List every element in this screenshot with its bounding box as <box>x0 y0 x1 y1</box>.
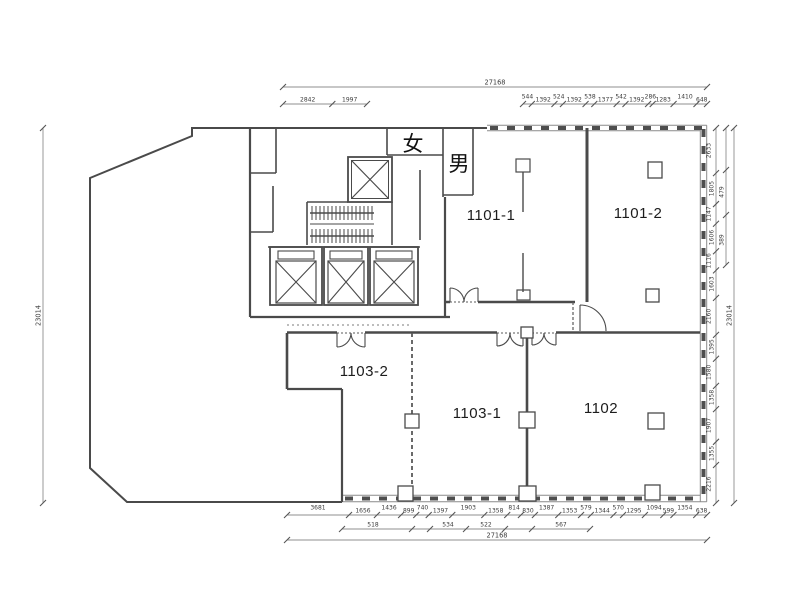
dim-label: 1395 <box>709 339 716 354</box>
dim-label: 814 <box>508 505 520 512</box>
elevator-shaft-2 <box>324 247 368 305</box>
dim-label: 1354 <box>677 505 692 512</box>
dim-label: 599 <box>663 508 675 515</box>
dim-label: 2633 <box>706 143 713 158</box>
restroom-label-men: 男 <box>449 152 470 176</box>
dim-label: 899 <box>403 508 415 515</box>
elevator-shaft-1 <box>270 247 322 305</box>
dim-label: 579 <box>580 505 592 512</box>
interior-walls <box>287 128 700 502</box>
room-label-1103-1: 1103-1 <box>453 405 502 422</box>
dim-label: 1580 <box>706 364 713 379</box>
dim-label: 1907 <box>706 418 713 433</box>
dim-label: 542 <box>615 94 627 101</box>
room-label-1101-2: 1101-2 <box>614 205 663 222</box>
column-1101-2-north <box>648 162 662 178</box>
dim-label: 2842 <box>300 97 315 104</box>
dim-label: 479 <box>719 186 726 198</box>
dim-label: 1805 <box>709 181 716 196</box>
double-door-1102 <box>532 333 556 345</box>
dim-label: 1436 <box>381 505 396 512</box>
floor-plan-page: 1101-1 1101-2 1102 1103-1 1103-2 女 男 271… <box>0 0 800 600</box>
restroom-label-women: 女 <box>403 132 424 156</box>
dim-label: 1387 <box>539 505 554 512</box>
dim-label: 1997 <box>342 97 357 104</box>
dim-label: 389 <box>719 234 726 246</box>
dim-label: 567 <box>555 522 567 529</box>
dim-label: 1295 <box>626 508 641 515</box>
elevator-shaft-upper <box>348 157 392 202</box>
floor-plan-drawing: 1101-1 1101-2 1102 1103-1 1103-2 女 男 271… <box>0 0 800 600</box>
dim-label: 524 <box>553 94 565 101</box>
corridor-door <box>580 305 606 331</box>
dim-label: 1147 <box>706 206 713 221</box>
dim-label: 544 <box>522 94 534 101</box>
dim-label: 1358 <box>709 390 716 405</box>
dim-label: 1116 <box>706 253 713 268</box>
column-1101-2-south <box>646 289 659 302</box>
dim-label: 1094 <box>646 505 661 512</box>
dim-label: 27168 <box>487 532 508 540</box>
wall-1103-2-notch <box>287 389 342 502</box>
dim-label: 518 <box>367 522 379 529</box>
dim-label: 1656 <box>355 508 370 515</box>
dim-label: 830 <box>522 508 534 515</box>
column-1102 <box>648 413 664 429</box>
building-outline <box>90 128 487 502</box>
dimension-annotations: 2716828421997544139252413925381377542139… <box>35 79 738 544</box>
dim-label: 1377 <box>598 97 613 104</box>
column-south-1 <box>398 486 413 501</box>
dim-label: 1392 <box>536 97 551 104</box>
dim-label: 1355 <box>709 446 716 461</box>
dim-label: 534 <box>442 522 454 529</box>
dim-label: 1606 <box>709 230 716 245</box>
dim-label: 638 <box>696 508 708 515</box>
dim-label: 23014 <box>726 305 734 326</box>
dim-label: 1358 <box>488 508 503 515</box>
room-label-1101-1: 1101-1 <box>467 207 516 224</box>
room-label-1102: 1102 <box>584 400 618 417</box>
dim-label: 1903 <box>461 505 476 512</box>
dim-label: 1397 <box>433 508 448 515</box>
room-label-1103-2: 1103-2 <box>340 363 389 380</box>
dim-label: 1603 <box>709 276 716 291</box>
column-south-3 <box>645 485 660 500</box>
column-south-2 <box>519 486 536 501</box>
dim-label: 23014 <box>35 305 43 326</box>
dim-label: 648 <box>696 97 708 104</box>
dim-label: 570 <box>613 505 625 512</box>
double-door-1103-2 <box>337 333 365 347</box>
dim-label: 538 <box>584 94 596 101</box>
dim-label: 740 <box>417 505 429 512</box>
double-door-1101-1 <box>450 288 478 302</box>
dim-label: 1392 <box>567 97 582 104</box>
window-walls <box>342 125 707 502</box>
elevator-shaft-3 <box>370 247 418 305</box>
dim-label: 2160 <box>706 309 713 324</box>
dim-label: 522 <box>480 522 492 529</box>
dim-label: 1283 <box>656 97 671 104</box>
dim-label: 1353 <box>562 508 577 515</box>
column-stub-north <box>521 327 533 338</box>
double-door-1103-1 <box>497 333 523 346</box>
dim-label: 27168 <box>485 79 506 87</box>
dim-label: 3681 <box>310 505 325 512</box>
dim-label: 1344 <box>595 508 610 515</box>
dim-label: 1410 <box>677 94 692 101</box>
column-1102-divider <box>519 412 535 428</box>
dim-label: 1392 <box>629 97 644 104</box>
dim-label: 2216 <box>706 476 713 491</box>
column-1103-divider <box>405 414 419 428</box>
